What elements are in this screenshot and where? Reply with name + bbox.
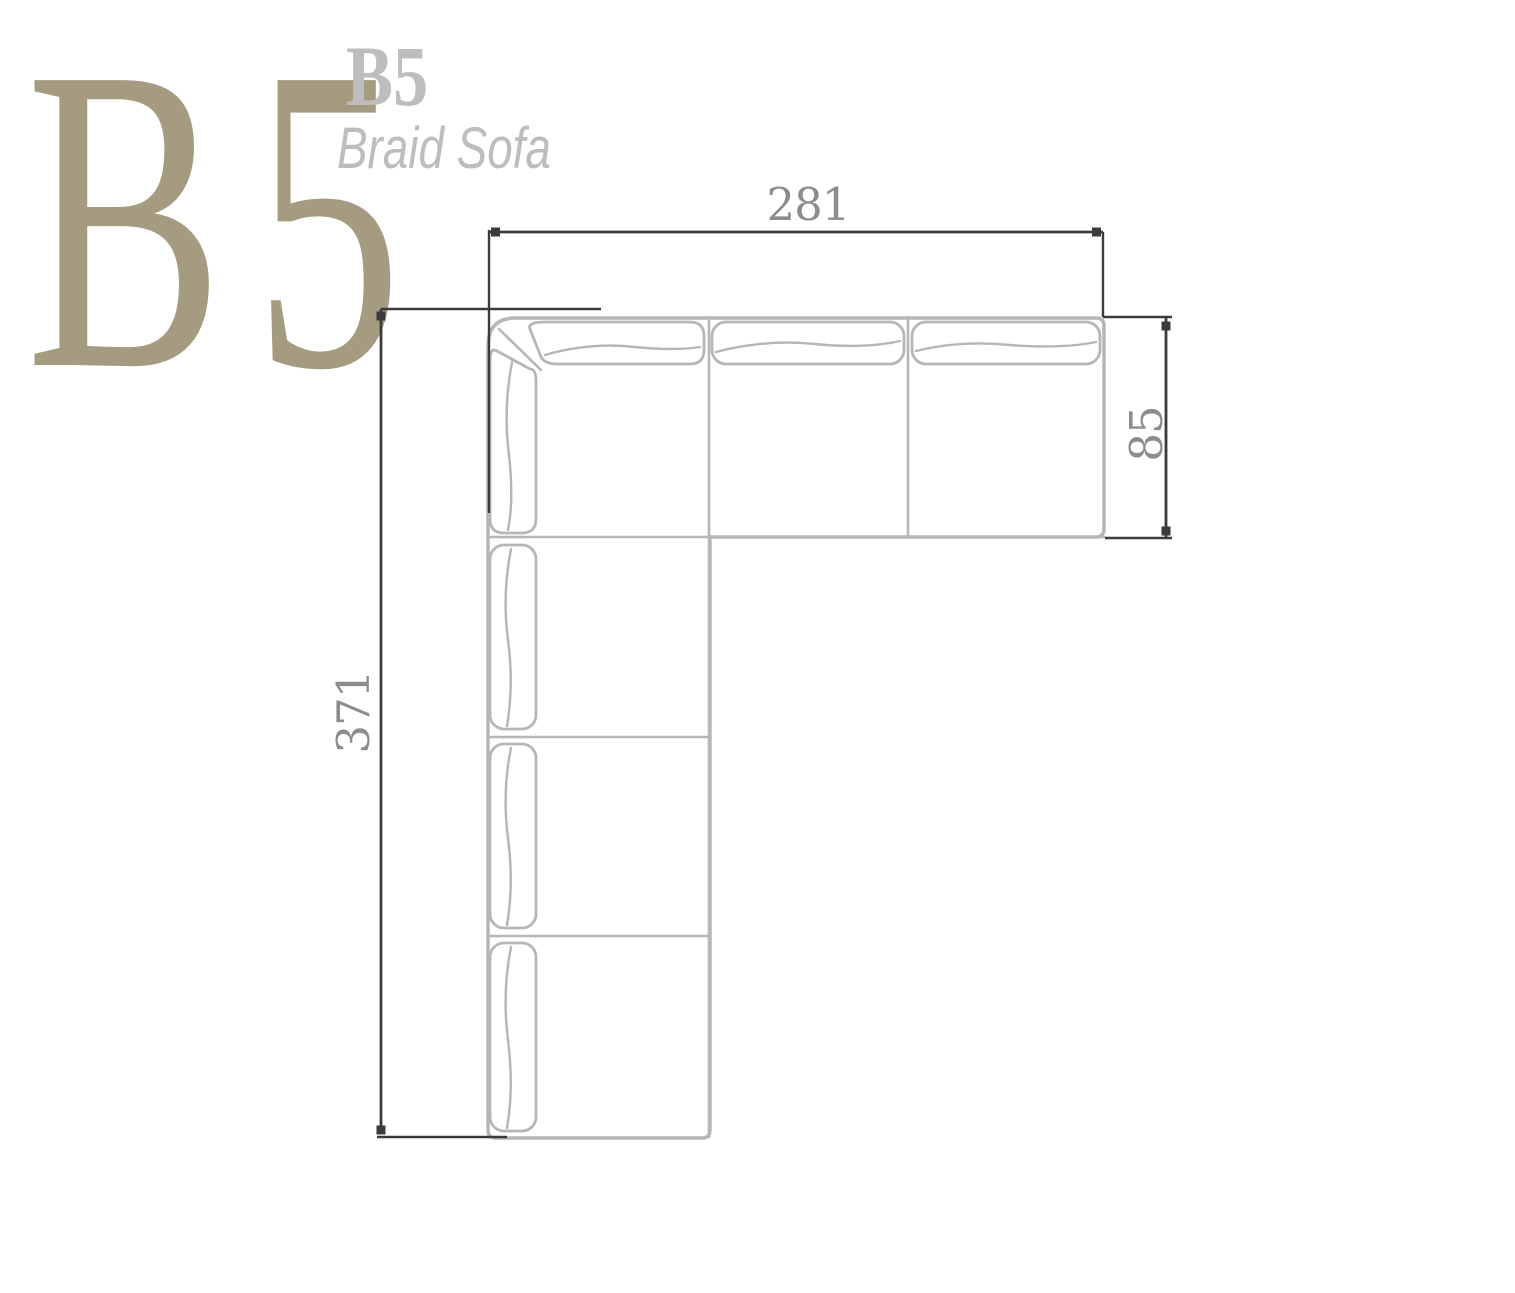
module-seams xyxy=(488,318,1104,1137)
model-code-text: B5 xyxy=(346,30,428,125)
right-back-cushion xyxy=(912,322,1100,364)
spec-sheet-canvas: B5 B5 Braid Sofa xyxy=(0,0,1515,1293)
depth-dimension-label: 85 xyxy=(1120,406,1173,461)
back-cushions-left-column xyxy=(490,350,536,1131)
height-dimension-label: 371 xyxy=(327,671,380,754)
width-dimension-label: 281 xyxy=(767,178,850,231)
corner-back-cushion xyxy=(530,322,704,364)
back-cushions-top-row xyxy=(530,322,1100,364)
sofa-plan-drawing xyxy=(488,318,1104,1138)
dimension-lines xyxy=(381,232,1166,1133)
corner-left-back-cushion xyxy=(490,350,536,533)
sofa-outline xyxy=(488,318,1104,1138)
left-back-cushion-2 xyxy=(490,545,536,729)
left-back-cushion-3 xyxy=(490,744,536,928)
header: B5 B5 Braid Sofa xyxy=(26,0,551,460)
spec-sheet-page: B5 B5 Braid Sofa xyxy=(0,0,1515,1293)
extension-lines xyxy=(377,230,1172,1137)
model-name-text: Braid Sofa xyxy=(337,117,551,181)
left-back-cushion-4 xyxy=(490,943,536,1131)
